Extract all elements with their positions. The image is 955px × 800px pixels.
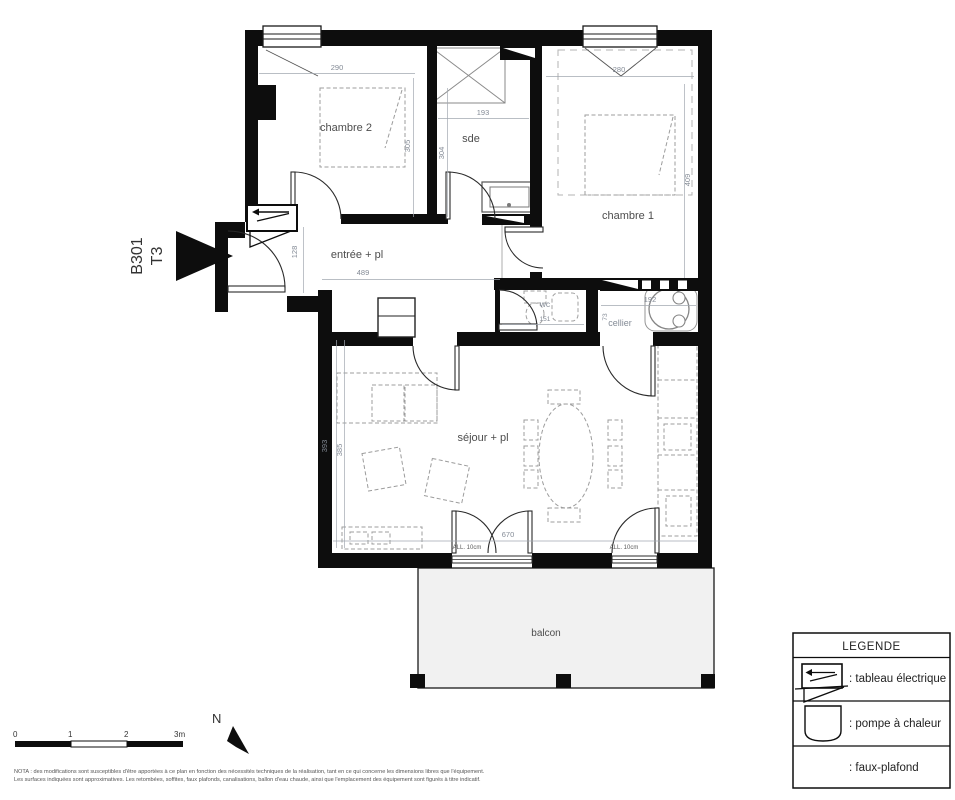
heat-pump-icon xyxy=(805,706,841,741)
window-chambre2 xyxy=(263,26,321,76)
balcony-post xyxy=(701,674,715,688)
dim-chambre2-width: 290 xyxy=(331,63,344,72)
door-sejour xyxy=(413,346,459,390)
legend-title: LEGENDE xyxy=(842,641,900,653)
legend-item-electrical: : tableau électrique xyxy=(849,673,946,685)
dim-chambre1-width: 280 xyxy=(613,65,626,74)
label-balcon: balcon xyxy=(531,628,560,639)
nota-line2: Les surfaces indiquées sont approximativ… xyxy=(14,777,481,783)
label-entree: entrée + pl xyxy=(331,249,383,261)
nota-line1: NOTA : des modifications sont susceptibl… xyxy=(14,769,485,775)
balcony-post xyxy=(556,674,571,688)
entree-closet xyxy=(378,298,415,337)
nota-text: NOTA : des modifications sont susceptibl… xyxy=(14,769,485,783)
north-arrow: N xyxy=(212,711,249,754)
legend-item-fauxplafond: : faux-plafond xyxy=(849,762,919,774)
scale-tick-2: 2 xyxy=(124,730,129,739)
dim-chambre1-height: 409 xyxy=(683,174,692,187)
north-label: N xyxy=(212,711,221,726)
tv-bench xyxy=(342,527,422,549)
unit-code: B301 xyxy=(129,237,146,274)
unit-type: T3 xyxy=(149,247,166,266)
legend-item-heatpump: : pompe à chaleur xyxy=(849,718,941,730)
scale-tick-3: 3m xyxy=(174,730,185,739)
all-label-left: ALL. 10cm xyxy=(453,545,482,551)
north-needle-icon xyxy=(227,726,249,754)
dim-sejour-outer: 393 xyxy=(320,440,329,453)
legend: LEGENDE : tableau électrique : pompe à c… xyxy=(793,633,950,788)
label-chambre1: chambre 1 xyxy=(602,210,654,222)
kitchen-counter xyxy=(658,340,697,536)
balcony-post xyxy=(410,674,425,688)
label-cellier: cellier xyxy=(608,318,632,328)
balcony xyxy=(410,568,715,688)
all-label-right: ALL. 10cm xyxy=(610,545,639,551)
label-sde: sde xyxy=(462,133,480,145)
dim-wc-width: 151 xyxy=(540,316,551,323)
dining-table xyxy=(524,390,622,522)
electrical-panel-symbol xyxy=(247,205,297,247)
scale-tick-1: 1 xyxy=(68,730,73,739)
faux-plafond-icon xyxy=(804,752,842,782)
scale-tick-0: 0 xyxy=(13,730,18,739)
door-chambre2 xyxy=(291,172,341,219)
entrance-door xyxy=(228,231,285,292)
bed-chambre1 xyxy=(585,115,675,195)
pouf xyxy=(362,447,406,491)
dim-cellier-width: 192 xyxy=(644,295,657,304)
dim-sde-width: 193 xyxy=(477,108,490,117)
label-sejour: séjour + pl xyxy=(457,432,508,444)
dim-sejour-inner: 385 xyxy=(335,444,344,457)
shower xyxy=(432,48,505,103)
dim-entree-height: 128 xyxy=(290,246,299,259)
scale-bar: 0 1 2 3m xyxy=(13,730,185,747)
floorplan-svg: 290 305 193 304 280 409 489 128 151 192 … xyxy=(0,0,955,800)
sofa xyxy=(337,373,437,423)
floorplan-page: 290 305 193 304 280 409 489 128 151 192 … xyxy=(0,0,955,800)
dim-entree-width: 489 xyxy=(357,268,370,277)
label-chambre2: chambre 2 xyxy=(320,122,372,134)
dim-chambre2-height: 305 xyxy=(403,140,412,153)
dim-sejour-width: 670 xyxy=(502,530,515,539)
dim-sde-height: 304 xyxy=(437,147,446,160)
label-wc: wc xyxy=(539,299,551,309)
door-cellier xyxy=(603,346,655,396)
pouf xyxy=(424,458,469,503)
